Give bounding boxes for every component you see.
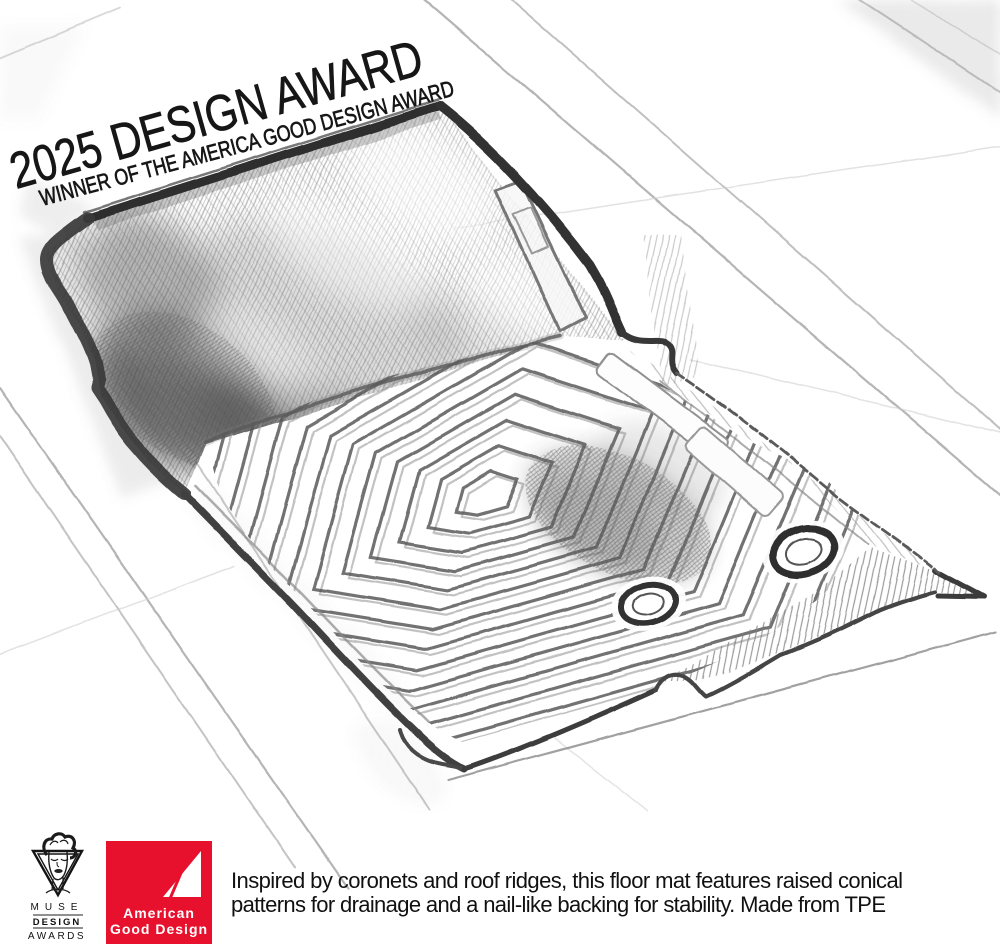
svg-text:American: American <box>123 905 195 921</box>
svg-text:Good Design: Good Design <box>110 921 208 937</box>
svg-text:patterns for drainage and a na: patterns for drainage and a nail-like ba… <box>231 892 886 917</box>
svg-text:MUSE: MUSE <box>31 902 84 913</box>
svg-text:DESIGN: DESIGN <box>33 917 81 928</box>
svg-text:Inspired by coronets and roof: Inspired by coronets and roof ridges, th… <box>231 868 903 893</box>
svg-text:AWARDS: AWARDS <box>28 931 86 942</box>
